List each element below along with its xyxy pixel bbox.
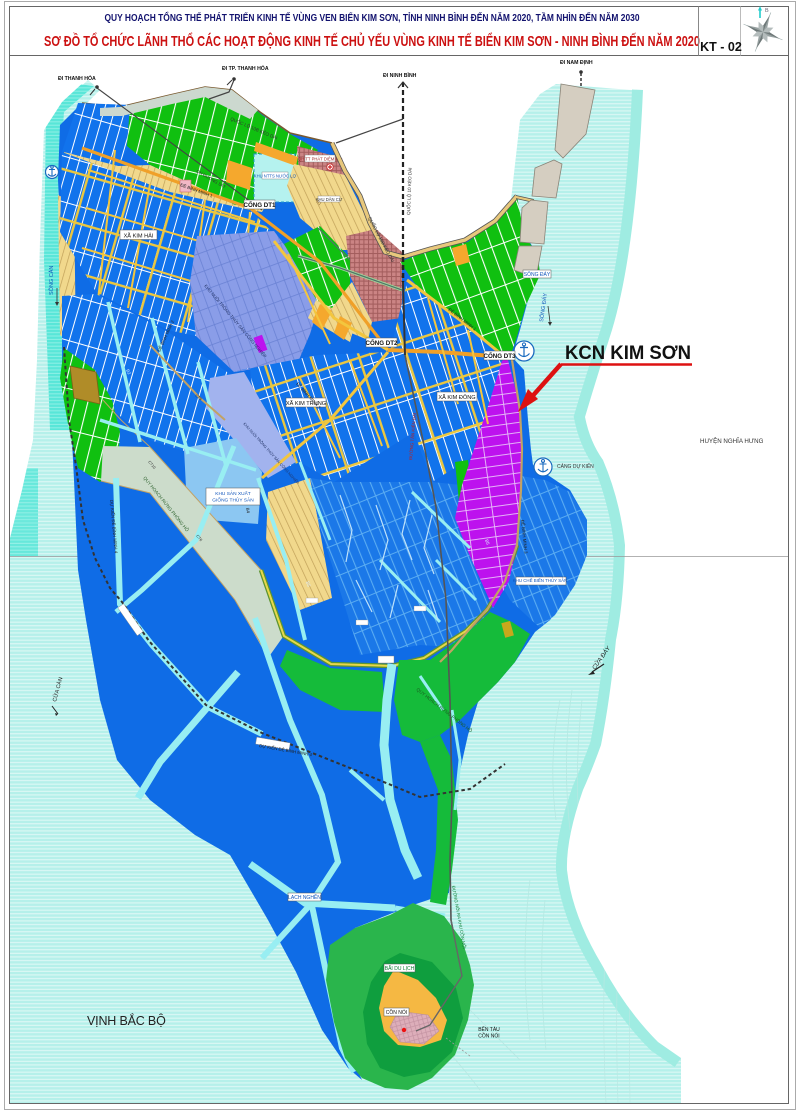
svg-text:SƠ ĐỒ TỔ CHỨC LÃNH THỔ CÁC HOẠ: SƠ ĐỒ TỔ CHỨC LÃNH THỔ CÁC HOẠT ĐỘNG KIN… bbox=[44, 32, 700, 50]
svg-text:KT - 02: KT - 02 bbox=[700, 40, 742, 54]
svg-text:QUY HOẠCH TỔNG THỂ PHÁT TRIỂN: QUY HOẠCH TỔNG THỂ PHÁT TRIỂN KINH TẾ VÙ… bbox=[105, 11, 640, 24]
svg-text:B: B bbox=[765, 8, 769, 14]
